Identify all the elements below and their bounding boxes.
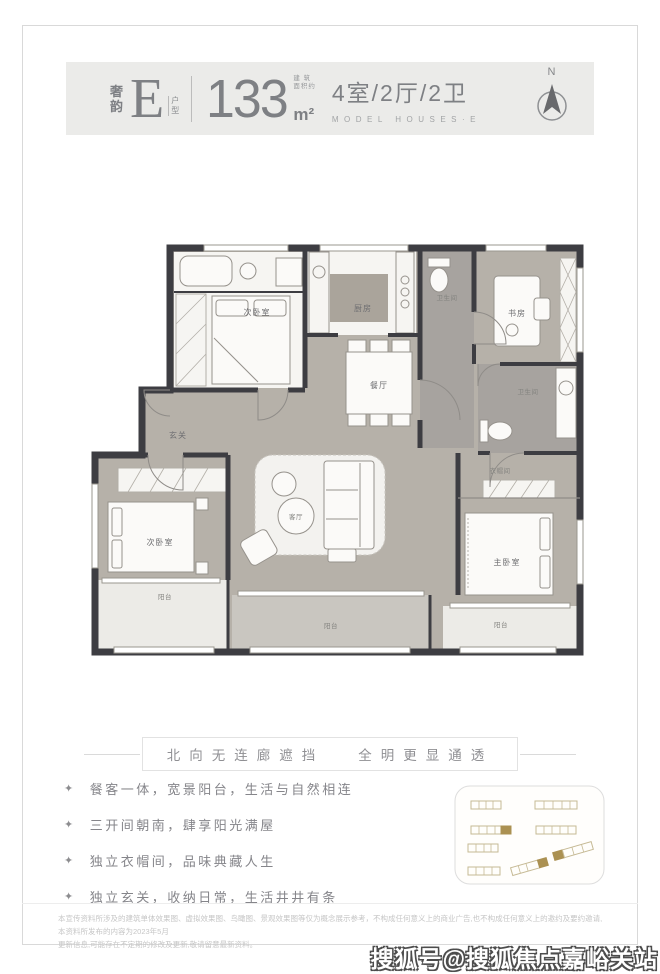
tagline-left: 北向无连廊遮挡: [167, 744, 325, 764]
room-label-bath-corridor: 卫生间: [437, 293, 458, 302]
highlighted-unit: [537, 858, 548, 868]
feature-item: ✦ 三开间朝南，肆享阳光满屋: [64, 815, 353, 834]
star-icon: ✦: [64, 854, 76, 867]
room-label-bedroom-bottom-left: 次卧室: [147, 537, 174, 547]
area-side: 建 筑 面积约 m²: [293, 75, 316, 125]
area-note-bottom: 面积约: [293, 83, 316, 91]
compass: N: [530, 66, 574, 130]
star-icon: ✦: [64, 818, 76, 831]
header-rooms: 4室/2厅/2卫 MODEL HOUSES·E: [332, 74, 481, 124]
subtitle-en: MODEL HOUSES·E: [332, 115, 481, 124]
feature-list: ✦ 餐客一体，宽景阳台，生活与自然相连 ✦ 三开间朝南，肆享阳光满屋 ✦ 独立衣…: [64, 779, 353, 906]
feature-item: ✦ 餐客一体，宽景阳台，生活与自然相连: [64, 779, 353, 798]
room-label-study: 书房: [508, 308, 526, 318]
feature-text: 三开间朝南，肆享阳光满屋: [90, 815, 276, 834]
floorplan: 次卧室 厨房 书房 卫生间 卫生间 玄关 餐厅 客厅 次卧室 主卧室 衣帽间 阳…: [88, 232, 588, 672]
tagline-right: 全明更显通透: [358, 744, 493, 764]
room-label-foyer: 玄关: [169, 430, 187, 440]
compass-icon: [530, 78, 574, 126]
area-unit: m²: [293, 105, 316, 125]
feature-item: ✦ 独立衣帽间，品味典藏人生: [64, 851, 353, 870]
room-label-dining: 餐厅: [370, 381, 388, 390]
area-value: 133: [206, 72, 287, 126]
room-label-balcony-left: 阳台: [158, 592, 172, 601]
room-label-kitchen: 厨房: [354, 303, 372, 313]
unit-type-label: 户 型: [168, 96, 179, 116]
tagline-rule-right: [520, 754, 576, 755]
watermark: 搜狐号@搜狐焦点嘉峪关站: [371, 940, 658, 974]
siteplan-map: [453, 779, 608, 891]
header-divider: [191, 76, 192, 122]
series-char-2: 韵: [110, 99, 124, 114]
room-label-balcony-right: 阳台: [494, 620, 508, 629]
room-label-balcony-center: 阳台: [324, 621, 338, 630]
unit-type-letter: E: [130, 71, 164, 127]
highlighted-unit: [501, 826, 511, 834]
tagline-row: 北向无连廊遮挡 全明更显通透: [0, 737, 660, 771]
area-note-top: 建 筑: [293, 75, 316, 83]
header-band: 奢 韵 E 户 型 133 建 筑 面积约 m² 4室/2厅/2卫 MODEL …: [66, 62, 594, 135]
room-label-bath-master: 卫生间: [518, 387, 539, 396]
flyer-page: 奢 韵 E 户 型 133 建 筑 面积约 m² 4室/2厅/2卫 MODEL …: [0, 0, 660, 974]
room-count: 4室/2厅/2卫: [332, 74, 481, 108]
star-icon: ✦: [64, 782, 76, 795]
room-label-living: 客厅: [289, 512, 303, 521]
tagline-box: 北向无连廊遮挡 全明更显通透: [142, 737, 519, 771]
room-label-cloakroom: 衣帽间: [490, 466, 511, 475]
disclaimer-line-1: 本宣传资料所涉及的建筑单体效果图、虚拟效果图、鸟瞰图、景观效果图等仅为概念展示参…: [58, 912, 606, 938]
feature-text: 餐客一体，宽景阳台，生活与自然相连: [90, 779, 354, 798]
star-icon: ✦: [64, 890, 76, 903]
series-name: 奢 韵: [110, 84, 124, 114]
tagline-rule-left: [84, 754, 140, 755]
header-left: 奢 韵 E 户 型 133 建 筑 面积约 m² 4室/2厅/2卫 MODEL …: [110, 71, 481, 127]
compass-north-label: N: [530, 66, 574, 78]
room-label-master-bedroom: 主卧室: [494, 557, 521, 567]
feature-text: 独立衣帽间，品味典藏人生: [90, 851, 276, 870]
room-label-bedroom-top-left: 次卧室: [244, 307, 271, 317]
series-char-1: 奢: [110, 84, 124, 99]
footer-rule: [22, 903, 638, 904]
